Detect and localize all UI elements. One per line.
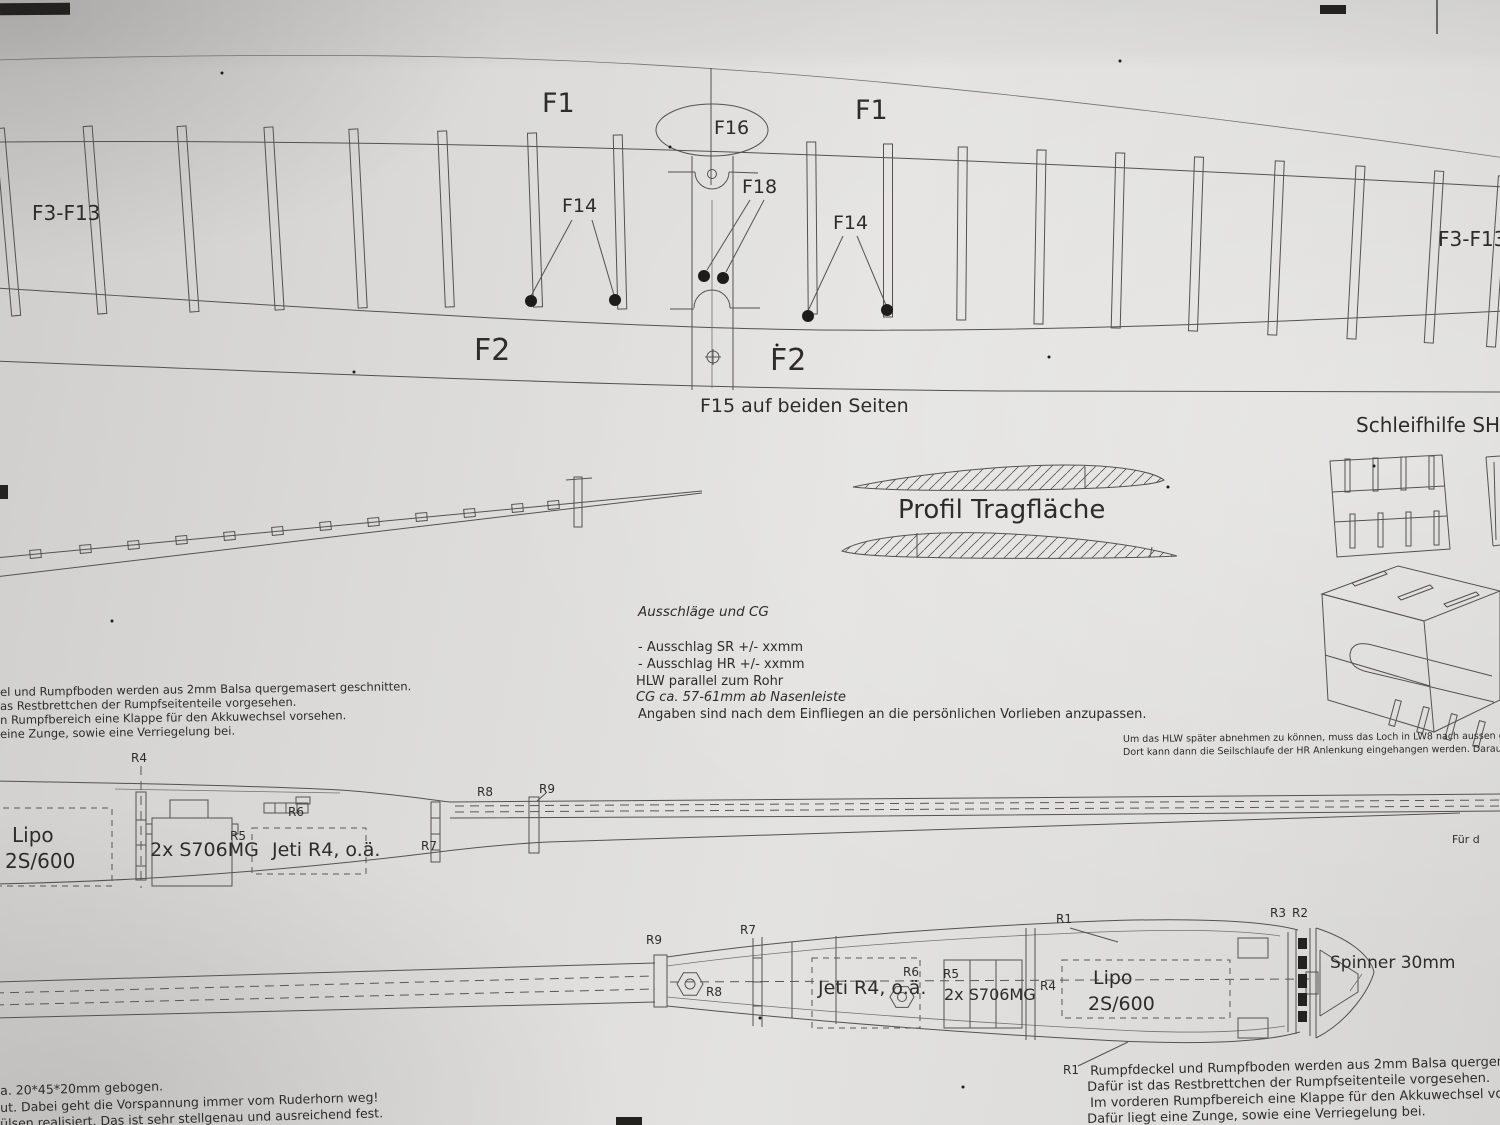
top-label-spinner: Spinner 30mm xyxy=(1330,954,1455,974)
label-f2-right: F2 xyxy=(770,344,806,379)
settings-line-2: - Ausschlag HR +/- xxmm xyxy=(638,658,805,673)
battery-box-side xyxy=(0,808,112,886)
fuselage-side-view xyxy=(0,766,1500,888)
side-label-r5: R5 xyxy=(230,830,246,844)
top-label-servos: 2x S706MG xyxy=(944,986,1036,1004)
top-label-lipo-2: 2S/600 xyxy=(1088,994,1155,1016)
wing-front-view xyxy=(0,477,702,577)
top-label-r4: R4 xyxy=(1040,980,1056,994)
label-f14-right: F14 xyxy=(833,213,868,235)
side-label-lipo: Lipo xyxy=(12,824,54,847)
f18-anchor-dot xyxy=(717,272,729,284)
side-label-lipo-2: 2S/600 xyxy=(5,850,75,873)
f14-anchor-dot xyxy=(881,304,893,316)
tail-post-top xyxy=(654,955,667,1007)
fuselage-top-view xyxy=(0,920,1374,1066)
wing-center-section xyxy=(656,68,768,390)
f14-anchor-dot xyxy=(609,294,621,306)
top-label-r6: R6 xyxy=(903,966,919,980)
side-label-r9: R9 xyxy=(539,783,555,797)
plan-linework xyxy=(0,0,1500,1125)
f14-anchor-dot xyxy=(802,310,814,322)
top-label-r3: R3 xyxy=(1270,907,1286,921)
settings-line-1: - Ausschlag SR +/- xxmm xyxy=(638,641,803,656)
label-f16: F16 xyxy=(714,118,749,140)
top-label-lipo: Lipo xyxy=(1093,968,1133,990)
wing-plan-view xyxy=(0,55,1500,392)
top-label-r2: R2 xyxy=(1292,907,1308,921)
label-f18: F18 xyxy=(742,177,777,199)
spinner-outline xyxy=(1316,928,1374,1038)
top-label-r7: R7 xyxy=(740,924,756,938)
airfoil-upper xyxy=(853,465,1164,490)
label-f1-right: F1 xyxy=(855,95,888,126)
photo-artifacts xyxy=(0,0,1438,1125)
f18-anchor-dot xyxy=(698,270,710,282)
top-label-r1-bottom: R1 xyxy=(1063,1064,1079,1078)
side-label-receiver: Jeti R4, o.ä. xyxy=(272,840,380,862)
blueprint-photo: F1 F1 F16 F18 F14 F14 F3-F13 F3-F13 F2 F… xyxy=(0,0,1500,1125)
top-label-r5: R5 xyxy=(943,968,959,982)
settings-line-4: CG ca. 57-61mm ab Nasenleiste xyxy=(636,691,846,706)
sanding-aid-title: Schleifhilfe SH1 xyxy=(1356,414,1500,437)
profile-title: Profil Tragfläche xyxy=(898,496,1105,526)
top-label-receiver: Jeti R4, o.ä. xyxy=(818,978,926,1000)
top-label-r9: R9 xyxy=(646,934,662,948)
top-label-r1-top: R1 xyxy=(1056,913,1072,927)
side-label-r7: R7 xyxy=(421,840,437,854)
label-f14-left: F14 xyxy=(562,196,597,218)
f14-anchor-dot xyxy=(525,295,537,307)
airfoil-lower xyxy=(842,533,1177,559)
label-f2-left: F2 xyxy=(474,334,510,369)
label-f15-note: F15 auf beiden Seiten xyxy=(700,396,909,418)
label-rib-range-left: F3-F13 xyxy=(32,202,100,225)
side-label-r8: R8 xyxy=(477,786,493,800)
label-f1-left: F1 xyxy=(542,88,575,119)
side-label-r6: R6 xyxy=(288,806,304,820)
settings-line-3: HLW parallel zum Rohr xyxy=(636,675,783,690)
sanding-aid-drawings xyxy=(1322,455,1500,747)
top-label-r8: R8 xyxy=(706,986,722,1000)
fragment-fuer: Für d xyxy=(1452,834,1480,847)
side-label-r4: R4 xyxy=(131,752,147,766)
settings-title: Ausschläge und CG xyxy=(638,605,769,621)
settings-line-5: Angaben sind nach dem Einfliegen an die … xyxy=(638,708,1147,723)
wing-bolt-hex xyxy=(677,973,703,996)
label-rib-range-right: F3-F13 xyxy=(1438,228,1500,251)
